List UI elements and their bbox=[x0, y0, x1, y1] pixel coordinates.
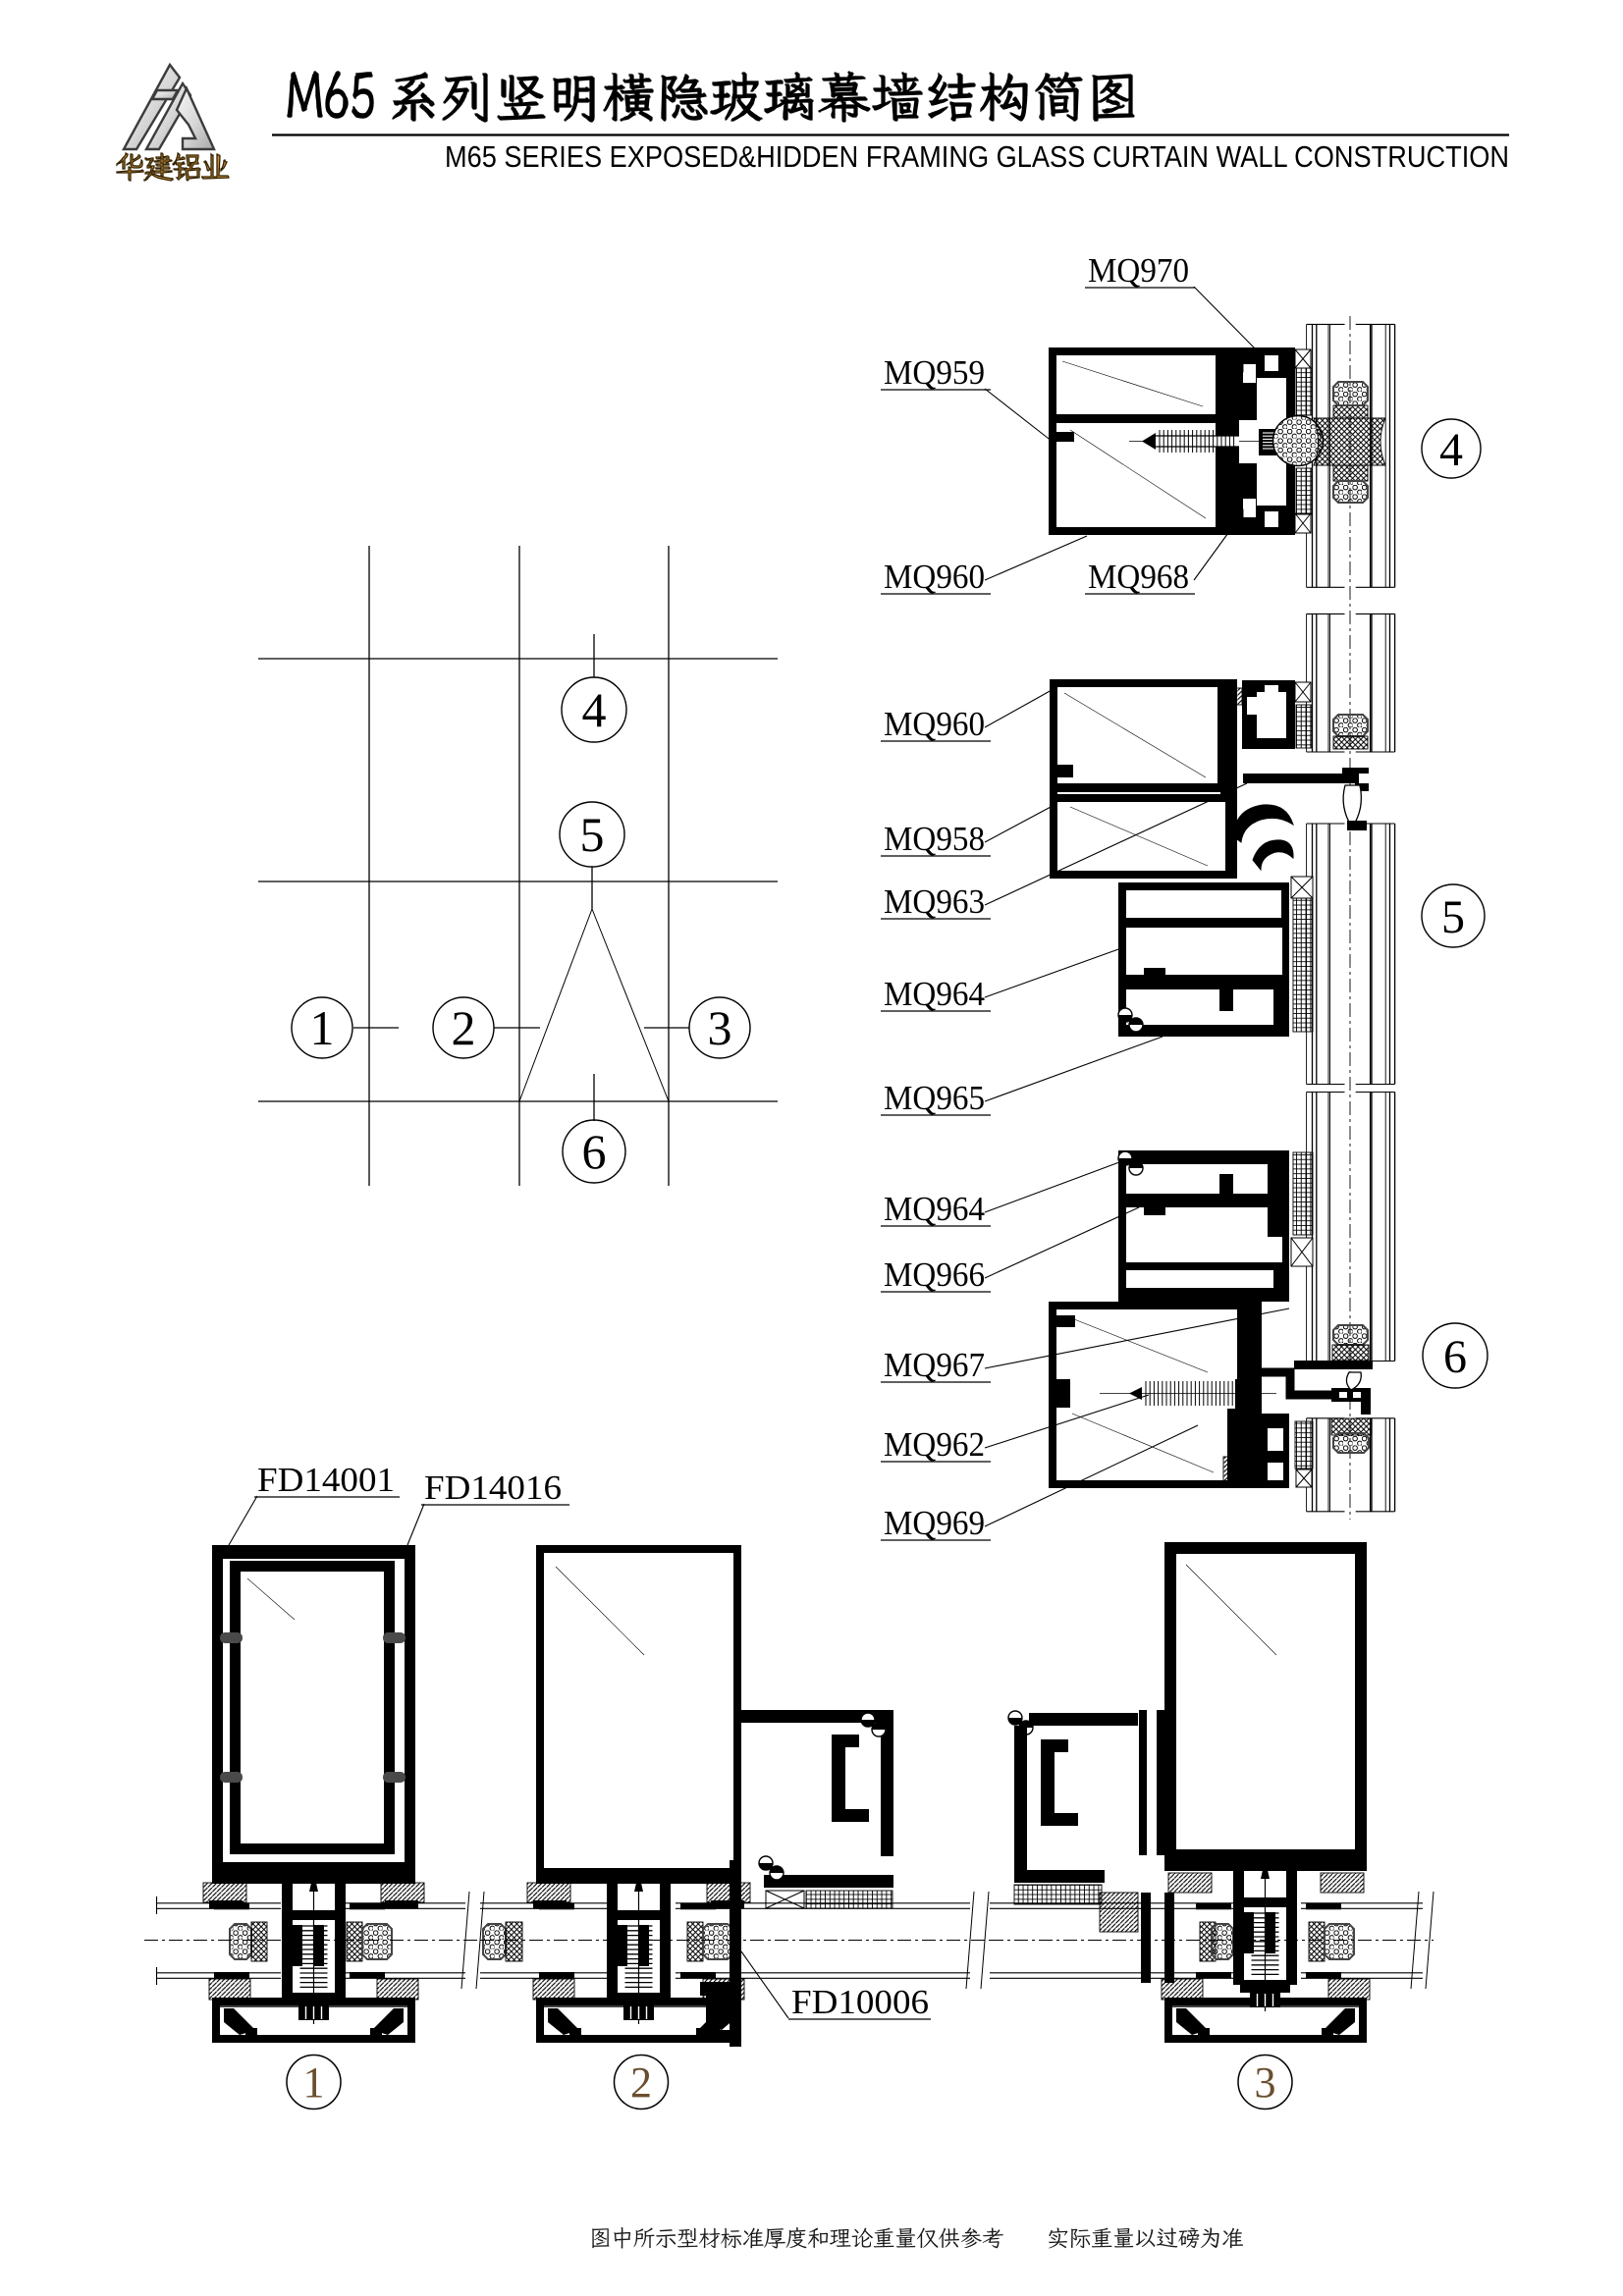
svg-text:MQ963: MQ963 bbox=[884, 882, 985, 921]
svg-text:5: 5 bbox=[1441, 891, 1465, 943]
svg-text:MQ969: MQ969 bbox=[884, 1504, 985, 1542]
svg-text:MQ964: MQ964 bbox=[884, 1190, 985, 1228]
svg-text:FD14001: FD14001 bbox=[257, 1461, 395, 1499]
svg-text:FD14016: FD14016 bbox=[424, 1468, 562, 1507]
svg-text:MQ964: MQ964 bbox=[884, 975, 985, 1013]
svg-text:2: 2 bbox=[630, 2058, 652, 2107]
svg-text:FD10006: FD10006 bbox=[791, 1983, 929, 2021]
svg-text:MQ959: MQ959 bbox=[884, 353, 985, 392]
svg-text:MQ968: MQ968 bbox=[1088, 558, 1189, 596]
svg-text:4: 4 bbox=[582, 682, 607, 737]
svg-text:MQ965: MQ965 bbox=[884, 1079, 985, 1117]
svg-text:MQ970: MQ970 bbox=[1088, 251, 1189, 290]
svg-text:3: 3 bbox=[708, 1000, 732, 1055]
svg-text:M65 SERIES EXPOSED&HIDDEN FRAM: M65 SERIES EXPOSED&HIDDEN FRAMING GLASS … bbox=[445, 139, 1509, 174]
svg-text:MQ958: MQ958 bbox=[884, 820, 985, 858]
svg-text:MQ962: MQ962 bbox=[884, 1425, 985, 1464]
svg-text:MQ967: MQ967 bbox=[884, 1346, 985, 1384]
svg-text:MQ960: MQ960 bbox=[884, 705, 985, 743]
svg-text:6: 6 bbox=[582, 1124, 607, 1179]
svg-text:4: 4 bbox=[1439, 424, 1463, 476]
svg-text:2: 2 bbox=[452, 1000, 476, 1055]
svg-text:MQ960: MQ960 bbox=[884, 558, 985, 596]
svg-text:3: 3 bbox=[1255, 2058, 1276, 2107]
svg-text:1: 1 bbox=[310, 1000, 335, 1055]
svg-text:1: 1 bbox=[303, 2058, 325, 2107]
svg-text:6: 6 bbox=[1443, 1331, 1467, 1383]
svg-text:MQ966: MQ966 bbox=[884, 1255, 985, 1294]
svg-text:5: 5 bbox=[580, 807, 605, 862]
